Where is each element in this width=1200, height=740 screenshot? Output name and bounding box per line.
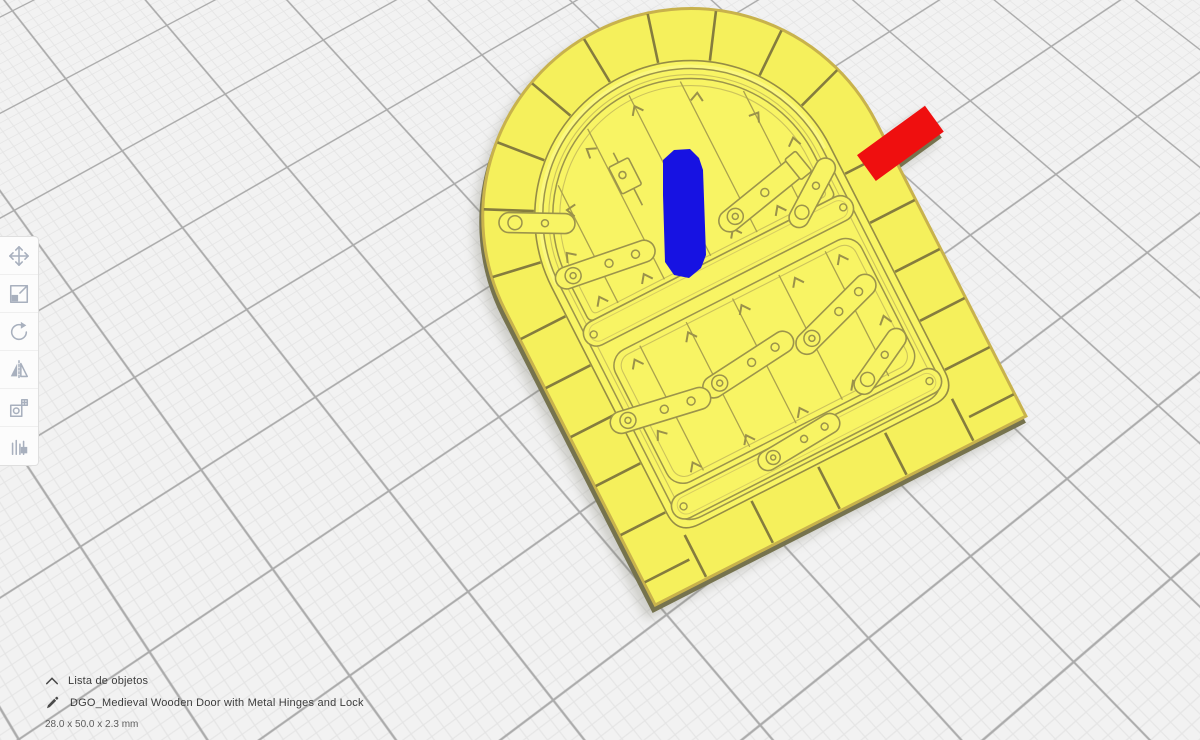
tool-per-model-settings-button[interactable] bbox=[0, 389, 38, 427]
object-dimensions: 28.0 x 50.0 x 2.3 mm bbox=[45, 719, 364, 730]
hinge bbox=[499, 212, 575, 233]
scene-canvas bbox=[0, 0, 1200, 740]
per-model-settings-icon bbox=[8, 397, 30, 419]
tool-rotate-button[interactable] bbox=[0, 313, 38, 351]
tool-move-button[interactable] bbox=[0, 237, 38, 275]
move-icon bbox=[8, 245, 30, 267]
object-list-panel: Lista de objetos DGO_Medieval Wooden Doo… bbox=[44, 675, 364, 732]
object-list-toggle-label: Lista de objetos bbox=[68, 675, 148, 687]
tool-mirror-button[interactable] bbox=[0, 351, 38, 389]
mirror-icon bbox=[8, 359, 30, 381]
viewport-3d[interactable]: Lista de objetos DGO_Medieval Wooden Doo… bbox=[0, 0, 1200, 740]
medieval-door-model[interactable] bbox=[411, 0, 1076, 605]
pencil-icon bbox=[44, 696, 60, 710]
tool-support-blocker-button[interactable] bbox=[0, 427, 38, 465]
object-name: DGO_Medieval Wooden Door with Metal Hing… bbox=[70, 697, 364, 709]
chevron-up-icon bbox=[44, 676, 60, 686]
object-list-item[interactable]: DGO_Medieval Wooden Door with Metal Hing… bbox=[44, 696, 364, 710]
rotate-icon bbox=[8, 321, 30, 343]
tool-toolbar bbox=[0, 236, 39, 466]
scale-icon bbox=[8, 283, 30, 305]
support-blocker-icon bbox=[8, 435, 30, 457]
object-list-toggle[interactable]: Lista de objetos bbox=[44, 675, 364, 687]
lock-block-model[interactable] bbox=[663, 149, 706, 278]
tool-scale-button[interactable] bbox=[0, 275, 38, 313]
